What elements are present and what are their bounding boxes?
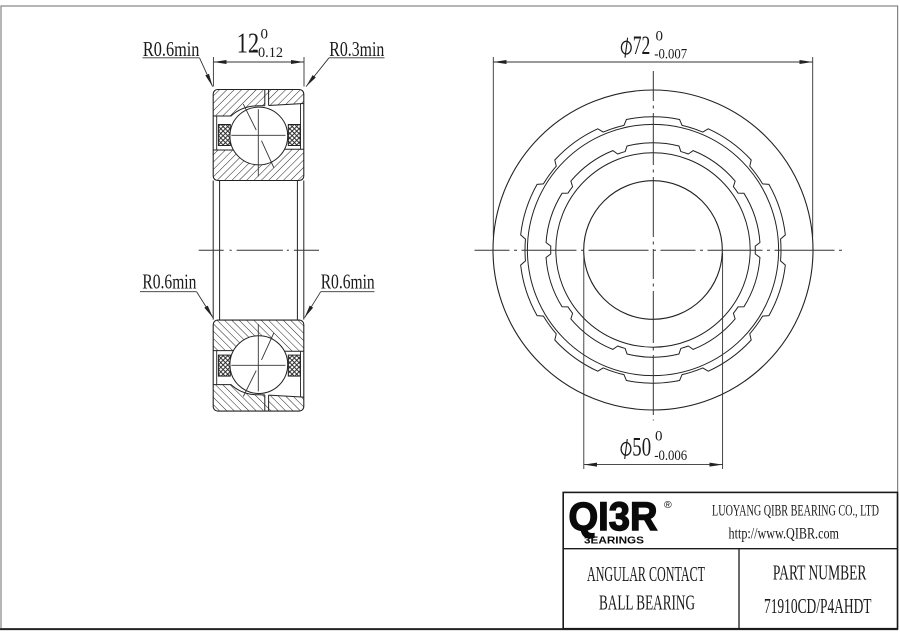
svg-text:R0.6min: R0.6min (142, 270, 196, 294)
svg-text:0: 0 (261, 26, 269, 42)
svg-text:71910CD/P4AHDT: 71910CD/P4AHDT (764, 594, 872, 618)
svg-text:ANGULAR CONTACT: ANGULAR CONTACT (587, 562, 705, 586)
svg-text:R0.6min: R0.6min (321, 270, 375, 294)
svg-text:50: 50 (632, 431, 651, 461)
svg-text:http://www.QIBR.com: http://www.QIBR.com (729, 526, 840, 543)
svg-text:BALL BEARING: BALL BEARING (599, 591, 695, 615)
svg-text:®: ® (664, 499, 672, 511)
svg-text:0: 0 (655, 429, 663, 445)
svg-text:-0.007: -0.007 (654, 47, 687, 63)
svg-text:72: 72 (633, 30, 651, 60)
svg-text:PART NUMBER: PART NUMBER (773, 560, 867, 584)
svg-text:0.12: 0.12 (258, 45, 283, 61)
svg-text:-0.006: -0.006 (654, 448, 687, 464)
svg-text:12: 12 (237, 29, 260, 60)
svg-text:LUOYANG QIBR BEARING CO., LTD: LUOYANG QIBR BEARING CO., LTD (712, 502, 879, 519)
svg-text:0: 0 (656, 29, 664, 45)
svg-text:3EARINGS: 3EARINGS (584, 536, 644, 547)
svg-text:QI3R: QI3R (569, 495, 658, 539)
